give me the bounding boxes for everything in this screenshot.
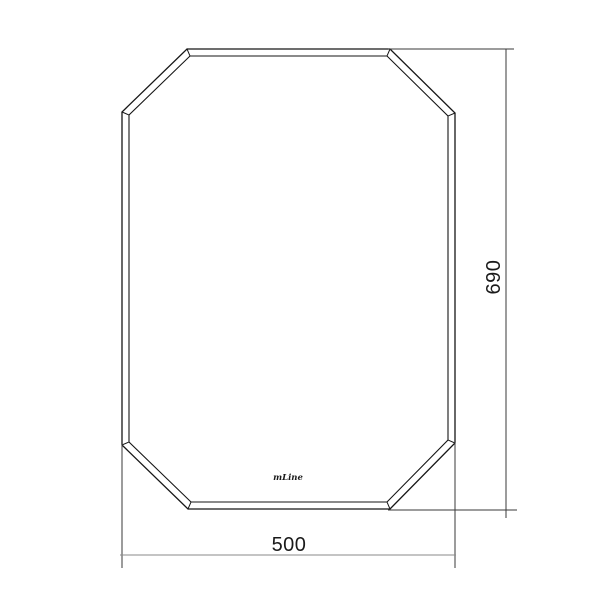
miter-line-bottom-right-lower <box>387 502 390 509</box>
miter-line-bottom-right-side <box>448 440 455 443</box>
height-dimension-label: 690 <box>483 260 505 295</box>
width-dimension-label: 500 <box>272 534 307 556</box>
technical-drawing-page: 500 690 mLine <box>0 0 600 600</box>
miter-line-bottom-left-side <box>122 442 129 445</box>
mirror-outline <box>122 49 455 509</box>
mirror-outline-inner <box>129 56 448 502</box>
miter-line-top-right-upper <box>387 49 390 56</box>
mirror-outline-outer <box>122 49 455 509</box>
miter-line-top-right-side <box>448 113 455 116</box>
corner-miter-lines <box>122 49 455 509</box>
miter-line-top-left-side <box>122 112 129 115</box>
technical-drawing-canvas: 500 690 mLine <box>0 0 600 600</box>
miter-line-bottom-left-lower <box>188 502 191 509</box>
miter-line-top-left-upper <box>187 49 190 56</box>
brand-logo: mLine <box>273 473 303 483</box>
dimension-annotations <box>120 49 517 568</box>
